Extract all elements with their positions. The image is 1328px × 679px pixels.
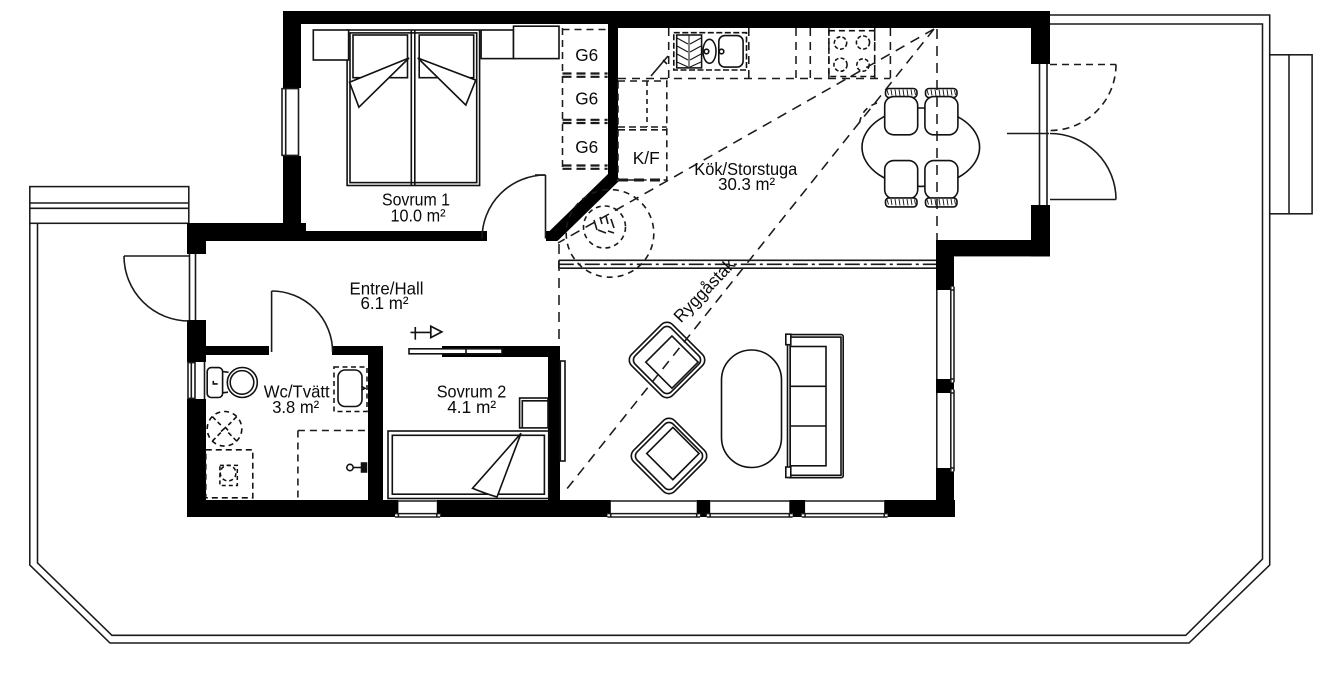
svg-text:10.0 m²: 10.0 m² xyxy=(391,206,446,226)
svg-text:30.3 m²: 30.3 m² xyxy=(718,174,775,194)
svg-text:G6: G6 xyxy=(575,137,598,157)
svg-text:G6: G6 xyxy=(575,45,598,65)
svg-text:3.8 m²: 3.8 m² xyxy=(272,397,319,417)
svg-text:4.1 m²: 4.1 m² xyxy=(447,397,496,417)
svg-text:G6: G6 xyxy=(575,89,598,109)
svg-text:K/F: K/F xyxy=(633,148,660,168)
svg-text:6.1 m²: 6.1 m² xyxy=(361,293,409,313)
